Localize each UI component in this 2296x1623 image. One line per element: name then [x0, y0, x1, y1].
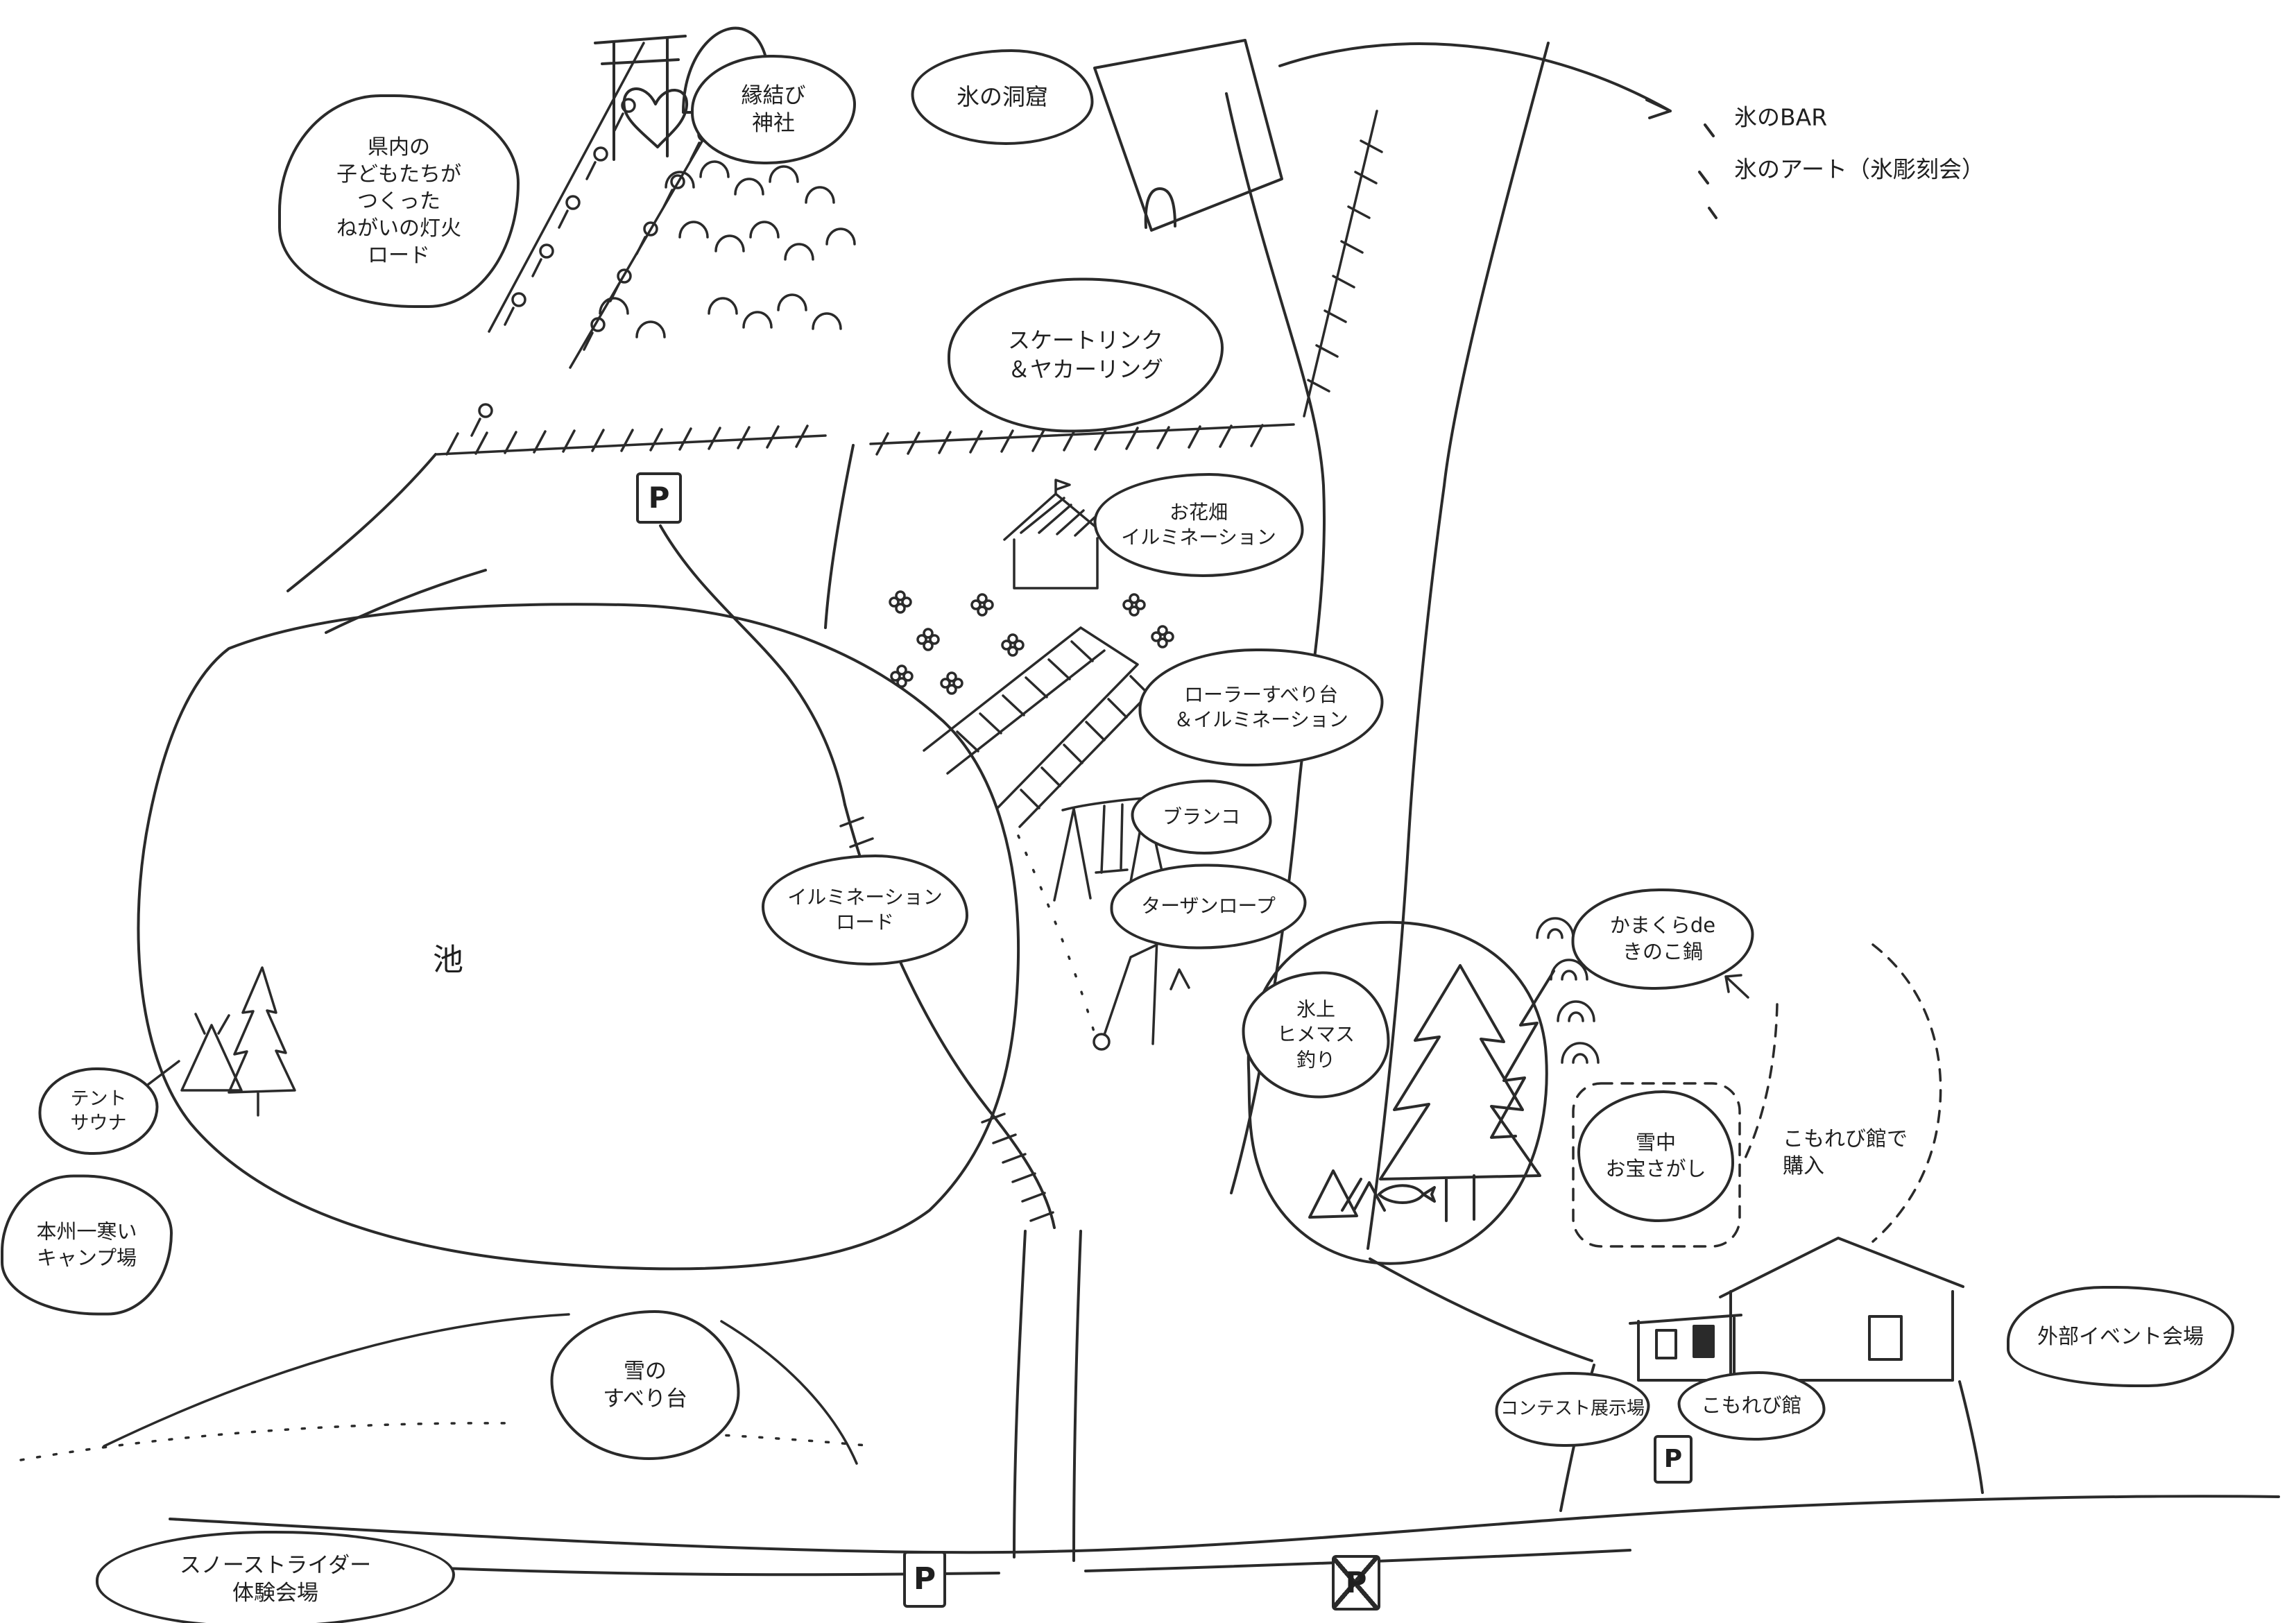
label-ice-art: 氷のアート（氷彫刻会） [1734, 155, 1985, 185]
label-ice-bar: 氷のBAR [1734, 103, 1827, 133]
label-outside-event: 外部イベント会場 [2007, 1286, 2234, 1387]
fish-icon [1379, 1185, 1434, 1203]
tent-sauna-icons [142, 968, 295, 1115]
parking-icon-north: P [636, 472, 682, 524]
parking-closed-icon: P [1332, 1555, 1380, 1611]
parking-icon-south: P [903, 1551, 946, 1608]
torii-icon [595, 36, 685, 160]
terrain-lines [21, 1314, 874, 1463]
list-ticks [1699, 125, 1716, 218]
tent-icon [182, 1014, 241, 1090]
parking-icon-komorebi: P [1654, 1435, 1693, 1484]
label-coldest-camp: 本州一寒い キャンプ場 [1, 1175, 173, 1316]
pine-tree-icon [229, 968, 295, 1115]
komorebi-buildings [1630, 1238, 1963, 1380]
roller-slide-icon [924, 628, 1157, 827]
heart-icon [624, 89, 687, 147]
ice-cave-building [1095, 40, 1716, 230]
label-pond: 池 [433, 940, 463, 979]
arrow-to-ice-bar [1280, 44, 1670, 118]
label-snow-strider: スノーストライダー 体験会場 [96, 1531, 455, 1623]
candle-road [472, 43, 727, 436]
label-purchase-note: こもれび館で 購入 [1783, 1126, 1908, 1180]
tarzan-rope-icon [1104, 938, 1189, 1044]
label-wish-lantern-road: 県内の 子どもたちが つくった ねがいの灯火 ロード [278, 94, 520, 308]
hand-drawn-map: 県内の 子どもたちが つくった ねがいの灯火 ロード 縁結び 神社 氷の洞窟 氷… [0, 0, 2296, 1623]
flower-house-icon [1004, 480, 1108, 588]
